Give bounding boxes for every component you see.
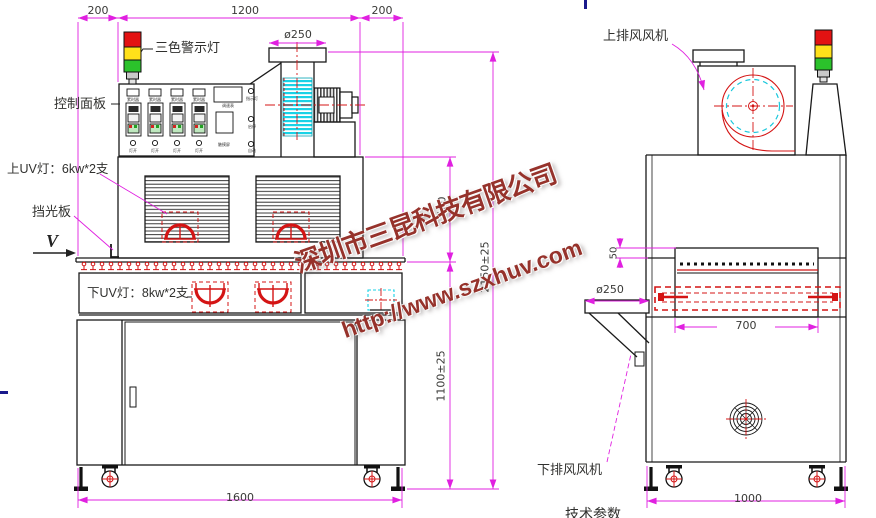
svg-text:启停: 启停 [248, 123, 256, 129]
blue-tick-artifact [584, 0, 587, 9]
dim-lamp-length: 700 [717, 319, 775, 332]
label-control-panel: 控制面板 [54, 97, 106, 111]
dim-top-mid: 1200 [205, 4, 285, 17]
upper-exhaust-fan [714, 68, 795, 151]
dim-depth: 1000 [716, 492, 780, 505]
svg-text:灯开: 灯开 [129, 147, 137, 153]
label-lower-exhaust-fan: 下排风风机 [537, 463, 602, 477]
lower-fan-grille [726, 399, 766, 439]
dim-top-right: 200 [361, 4, 403, 17]
dim-body-height: 1100±25 [435, 350, 448, 401]
leveling-foot [74, 467, 88, 491]
svg-text:累时器: 累时器 [193, 96, 205, 102]
svg-text:累时器: 累时器 [127, 96, 139, 102]
lower-uv-lamp-symbol [255, 282, 291, 312]
svg-text:灯开: 灯开 [195, 147, 203, 153]
dim-duct-diameter-side: ø250 [584, 283, 636, 296]
leveling-foot [391, 467, 405, 491]
caster-wheel [364, 465, 380, 487]
caster-wheel [102, 465, 118, 487]
drawing-lineart: 累时器 累时器 累时器 累时器 灯开 灯开 灯开 灯开 调速表 触摸屏 指示灯 … [0, 0, 876, 518]
warning-light-front [124, 32, 141, 84]
footer-partial-text: 技术参数 [565, 507, 621, 518]
label-lower-uv: 下UV灯：8kw*2支 [87, 287, 188, 301]
leveling-foot [834, 467, 848, 491]
svg-text:累时器: 累时器 [171, 96, 183, 102]
front-fan-assembly [283, 78, 358, 136]
view-direction-arrowhead [66, 249, 76, 257]
caster-wheel [809, 465, 825, 487]
side-conveyor-lamps [655, 264, 840, 310]
svg-text:指示灯: 指示灯 [246, 95, 258, 101]
svg-text:灯开: 灯开 [173, 147, 181, 153]
label-upper-uv: 上UV灯：6kw*2支 [7, 163, 108, 177]
leveling-foot [644, 467, 658, 491]
conveyor-roller-symbols [81, 262, 402, 269]
svg-text:调速表: 调速表 [222, 102, 234, 108]
label-upper-exhaust-fan: 上排风风机 [603, 29, 668, 43]
svg-text:触摸屏: 触摸屏 [218, 141, 230, 147]
cad-drawing-canvas: 累时器 累时器 累时器 累时器 灯开 灯开 灯开 灯开 调速表 触摸屏 指示灯 … [0, 0, 876, 518]
dim-top-left: 200 [78, 4, 118, 17]
warning-light-side [815, 30, 832, 82]
caster-wheel [666, 465, 682, 487]
label-warning-light: 三色警示灯 [155, 41, 220, 55]
lower-uv-lamp-symbol [192, 282, 228, 312]
dim-duct-diameter-front: ø250 [272, 28, 324, 41]
side-view-outline [585, 50, 846, 462]
svg-text:灯开: 灯开 [151, 147, 159, 153]
blue-dash-artifact [0, 391, 8, 394]
dim-belt-gap: 50 [609, 247, 620, 260]
svg-text:累时器: 累时器 [149, 96, 161, 102]
view-direction-mark: V [46, 231, 58, 252]
svg-text:自动: 自动 [248, 147, 256, 153]
dim-total-width: 1600 [210, 491, 270, 504]
label-light-shield: 挡光板 [32, 205, 71, 219]
